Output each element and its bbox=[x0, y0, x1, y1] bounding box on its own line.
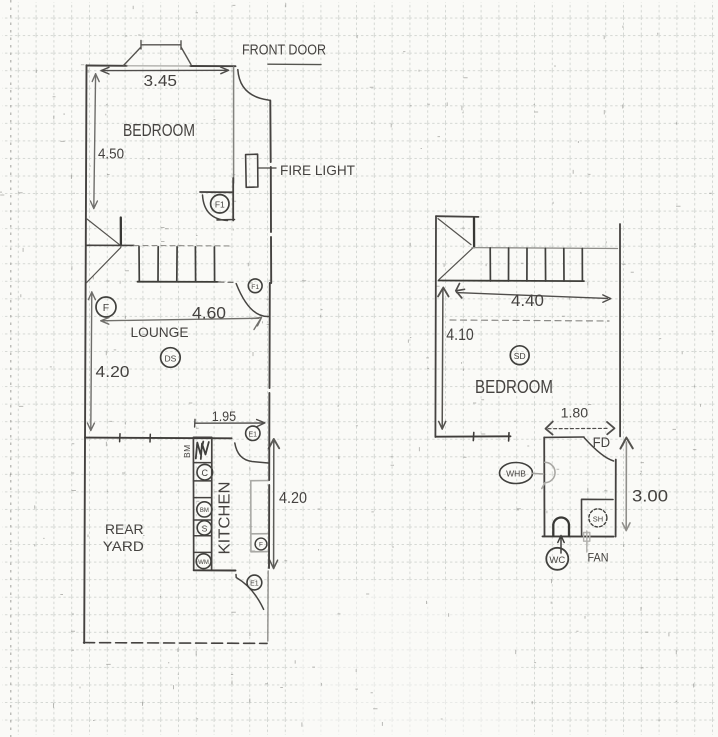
svg-text:4.10: 4.10 bbox=[446, 325, 474, 344]
svg-text:F: F bbox=[103, 302, 109, 314]
svg-text:1.80: 1.80 bbox=[561, 406, 589, 421]
svg-text:FAN: FAN bbox=[588, 551, 609, 565]
svg-text:BEDROOM: BEDROOM bbox=[123, 120, 195, 140]
svg-text:4.20: 4.20 bbox=[96, 364, 130, 381]
svg-text:REAR: REAR bbox=[105, 521, 144, 537]
svg-text:SH: SH bbox=[593, 514, 603, 523]
svg-text:4.50: 4.50 bbox=[98, 146, 124, 163]
svg-text:1.95: 1.95 bbox=[212, 408, 237, 424]
svg-text:4.60: 4.60 bbox=[192, 305, 226, 323]
svg-text:BEDROOM: BEDROOM bbox=[475, 376, 553, 397]
svg-text:FD: FD bbox=[593, 435, 611, 450]
svg-text:LOUNGE: LOUNGE bbox=[131, 324, 189, 340]
svg-text:BM: BM bbox=[200, 508, 209, 514]
svg-text:YARD: YARD bbox=[103, 538, 144, 554]
svg-text:E1: E1 bbox=[249, 431, 258, 438]
svg-text:F: F bbox=[259, 542, 263, 549]
svg-text:4.20: 4.20 bbox=[279, 490, 307, 507]
svg-text:C: C bbox=[202, 468, 209, 478]
svg-text:4.40: 4.40 bbox=[511, 292, 544, 310]
svg-text:FRONT DOOR: FRONT DOOR bbox=[242, 43, 326, 59]
svg-text:SD: SD bbox=[514, 351, 526, 361]
svg-text:S: S bbox=[202, 523, 208, 533]
svg-text:WHB: WHB bbox=[506, 469, 526, 479]
svg-text:DS: DS bbox=[164, 353, 176, 363]
svg-text:FIRE LIGHT: FIRE LIGHT bbox=[280, 162, 355, 178]
svg-text:E1: E1 bbox=[250, 581, 259, 588]
svg-text:F1: F1 bbox=[215, 199, 225, 209]
svg-text:WM: WM bbox=[198, 560, 209, 566]
svg-text:3.45: 3.45 bbox=[144, 73, 178, 90]
svg-text:BM: BM bbox=[182, 444, 192, 458]
svg-text:F1: F1 bbox=[251, 284, 259, 291]
svg-text:3.00: 3.00 bbox=[632, 488, 668, 506]
svg-text:WC: WC bbox=[549, 555, 565, 566]
svg-text:KITCHEN: KITCHEN bbox=[217, 482, 234, 555]
